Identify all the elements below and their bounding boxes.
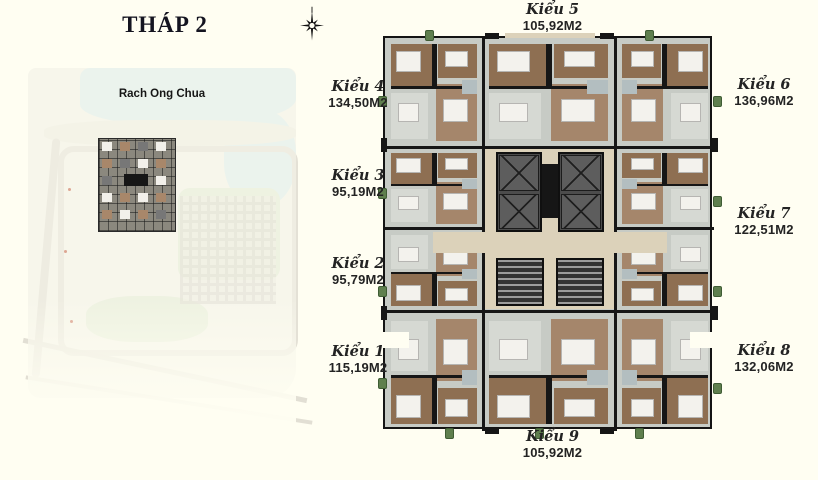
page: THÁP 2 Rach Ong Chua Kiểu 4 134,50M2 Ki — [0, 0, 818, 480]
floorplan-room — [622, 179, 637, 189]
facade-notch — [690, 332, 716, 348]
site-map-tower-cell — [102, 193, 112, 202]
floorplan-room — [445, 51, 468, 68]
floorplan-room — [396, 51, 420, 72]
floorplan-room — [445, 288, 468, 301]
floorplan-room — [443, 99, 467, 122]
unit-area: 105,92M2 — [500, 445, 605, 461]
site-map-tower-cell — [120, 142, 130, 151]
floorplan-wall — [385, 227, 482, 230]
site-map-tower-cell — [102, 210, 112, 219]
site-map-tower-cell — [102, 176, 112, 185]
floorplan-room — [499, 103, 527, 122]
floorplan-room — [497, 51, 531, 72]
plant-icon — [425, 30, 434, 41]
site-map-tower-cell — [156, 142, 166, 151]
unit-label-kieu-6: Kiểu 6 136,96M2 — [714, 77, 814, 109]
site-map-tower-cell — [120, 210, 130, 219]
floorplan-room — [631, 99, 655, 122]
compass-rose-icon — [297, 4, 327, 44]
site-map-tower-cell — [138, 159, 148, 168]
main-corridor — [433, 232, 667, 253]
unit-area: 134,50M2 — [310, 95, 406, 111]
unit-name: Kiểu 5 — [500, 2, 605, 18]
floorplan-room — [662, 376, 667, 424]
site-map-tower-cell — [102, 142, 112, 151]
floorplan-wall — [617, 227, 714, 230]
site-map-tower-cell — [156, 193, 166, 202]
floorplan-room — [662, 153, 667, 185]
unit-name: Kiểu 2 — [310, 256, 406, 272]
site-map-tower-cell — [156, 210, 166, 219]
floorplan-wall — [381, 138, 387, 152]
floorplan-room — [432, 376, 437, 424]
floorplan-room — [564, 51, 595, 68]
site-map-tower-cell — [120, 193, 130, 202]
floorplan-room — [432, 44, 437, 88]
floorplan-room — [396, 395, 420, 418]
floorplan-room — [622, 370, 637, 385]
plant-icon — [713, 286, 722, 297]
unit-label-kieu-7: Kiểu 7 122,51M2 — [714, 206, 814, 238]
plant-icon — [645, 30, 654, 41]
floorplan-room — [631, 288, 654, 301]
unit-area: 136,96M2 — [714, 93, 814, 109]
unit-area: 122,51M2 — [714, 222, 814, 238]
unit-name: Kiểu 1 — [310, 344, 406, 360]
floorplan-room — [662, 273, 667, 306]
stairwell — [496, 258, 544, 306]
floorplan-room — [561, 339, 595, 364]
floorplan-room — [631, 158, 654, 170]
site-map-label: Rach Ong Chua — [82, 88, 242, 100]
floorplan-room — [462, 179, 477, 189]
unit-label-kieu-8: Kiểu 8 132,06M2 — [714, 343, 814, 375]
floorplan-room — [497, 395, 531, 418]
floorplan-room — [587, 370, 608, 385]
floorplan-room — [443, 339, 467, 364]
unit-label-kieu-4: Kiểu 4 134,50M2 — [310, 79, 406, 111]
floorplan-room — [678, 51, 702, 72]
site-map-tower-cell — [138, 210, 148, 219]
elevator — [499, 155, 539, 191]
site-map-tower-cell — [138, 142, 148, 151]
core-wall — [542, 164, 558, 218]
floorplan-room — [462, 370, 477, 385]
unit-name: Kiểu 9 — [500, 429, 605, 445]
floorplan-room — [680, 247, 701, 261]
site-map-tower-core — [124, 174, 148, 186]
floorplan-room — [622, 80, 637, 94]
unit-area: 115,19M2 — [310, 360, 406, 376]
floorplan-room — [678, 395, 702, 418]
floorplan-room — [445, 158, 468, 170]
site-map-tower-cell — [120, 159, 130, 168]
plant-icon — [635, 428, 644, 439]
floorplan-room — [631, 399, 654, 417]
site-map-tower-cell — [156, 176, 166, 185]
floorplan-wall — [485, 428, 499, 434]
unit-label-kieu-5: Kiểu 5 105,92M2 — [500, 2, 605, 34]
floorplan-room — [680, 103, 701, 122]
floorplan-room — [680, 196, 701, 210]
unit-area: 95,19M2 — [310, 184, 406, 200]
floorplan-room — [622, 269, 637, 279]
floorplan-room — [564, 399, 595, 417]
floorplan-room — [662, 44, 667, 88]
unit-label-kieu-9: Kiểu 9 105,92M2 — [500, 429, 605, 461]
site-map-tower-cell — [156, 159, 166, 168]
unit-name: Kiểu 4 — [310, 79, 406, 95]
floorplan-room — [631, 193, 655, 210]
floorplan-room — [561, 99, 595, 122]
unit-area: 95,79M2 — [310, 272, 406, 288]
plant-icon — [713, 383, 722, 394]
floorplan-room — [631, 339, 655, 364]
floorplan-room — [462, 269, 477, 279]
floorplan-wall — [381, 306, 387, 320]
floorplan-wall — [712, 138, 718, 152]
floorplan-wall — [712, 306, 718, 320]
floorplan-wall — [485, 33, 499, 39]
floorplan-room — [678, 285, 702, 301]
plant-icon — [445, 428, 454, 439]
floorplan-room — [432, 153, 437, 185]
elevator — [561, 155, 601, 191]
elevator — [561, 194, 601, 229]
unit-name: Kiểu 3 — [310, 168, 406, 184]
unit-name: Kiểu 7 — [714, 206, 814, 222]
floorplan-room — [443, 193, 467, 210]
unit-area: 132,06M2 — [714, 359, 814, 375]
unit-name: Kiểu 6 — [714, 77, 814, 93]
site-map-tower-cell — [138, 193, 148, 202]
site-map-tower-cell — [102, 159, 112, 168]
floorplan-room — [546, 44, 552, 88]
floorplan-room — [462, 80, 477, 94]
floorplan-room — [587, 80, 608, 94]
plant-icon — [378, 378, 387, 389]
page-title: THÁP 2 — [100, 12, 230, 38]
site-map-bottom-fade — [28, 298, 296, 460]
unit-label-kieu-1: Kiểu 1 115,19M2 — [310, 344, 406, 376]
floorplan-room — [678, 158, 702, 173]
floorplan-room — [432, 273, 437, 306]
unit-name: Kiểu 8 — [714, 343, 814, 359]
floorplan-room — [499, 339, 527, 360]
floorplan-room — [445, 399, 468, 417]
elevator — [499, 194, 539, 229]
floorplan-room — [546, 376, 552, 424]
unit-label-kieu-2: Kiểu 2 95,79M2 — [310, 256, 406, 288]
site-map: Rach Ong Chua — [28, 68, 296, 460]
unit-area: 105,92M2 — [500, 18, 605, 34]
tower-floor-plan — [383, 36, 712, 429]
floorplan-room — [631, 51, 654, 68]
floorplan-wall — [385, 310, 714, 313]
stairwell — [556, 258, 604, 306]
unit-label-kieu-3: Kiểu 3 95,19M2 — [310, 168, 406, 200]
